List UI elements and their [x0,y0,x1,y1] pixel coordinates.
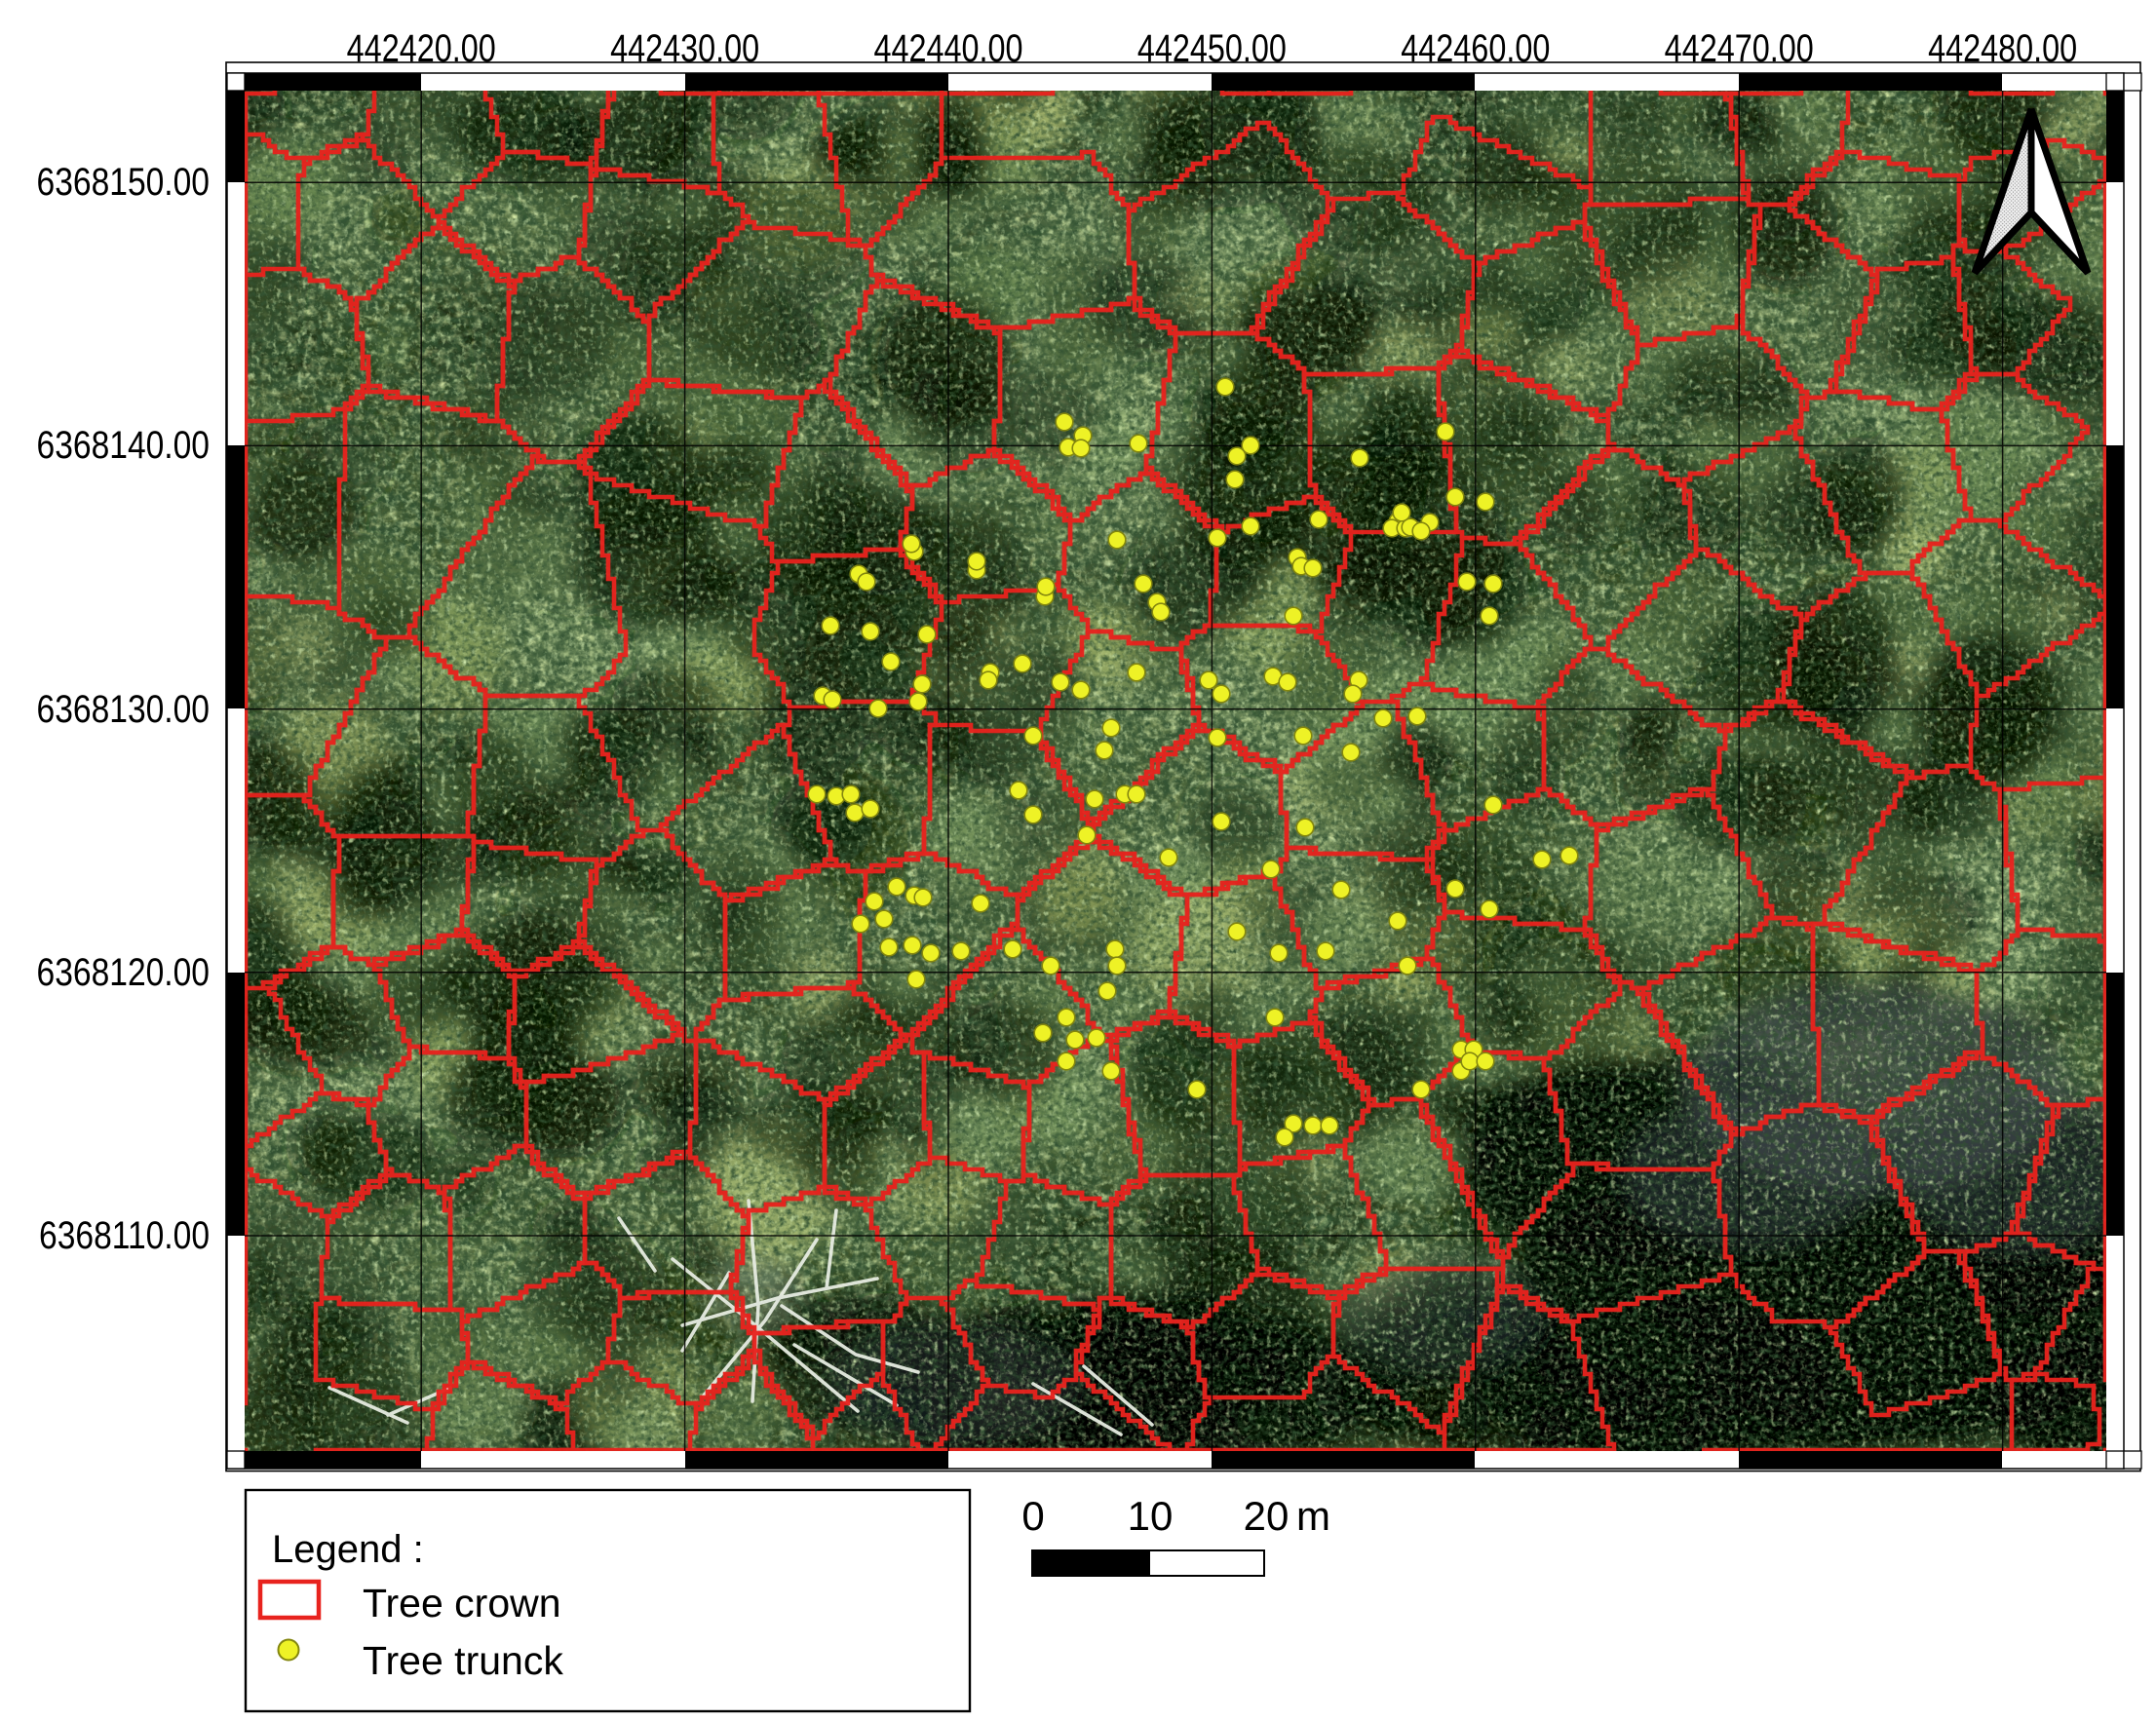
svg-text:20: 20 [1244,1493,1290,1539]
svg-text:442420.00: 442420.00 [347,26,496,70]
svg-text:10: 10 [1128,1493,1174,1539]
svg-text:6368110.00: 6368110.00 [39,1213,210,1256]
svg-text:Tree crown: Tree crown [363,1581,561,1625]
svg-text:6368120.00: 6368120.00 [37,950,210,993]
svg-text:442470.00: 442470.00 [1665,26,1814,70]
svg-text:m: m [1296,1493,1330,1539]
svg-text:0: 0 [1021,1493,1044,1539]
svg-text:442440.00: 442440.00 [873,26,1022,70]
svg-text:6368150.00: 6368150.00 [37,160,210,203]
svg-text:6368130.00: 6368130.00 [37,687,210,730]
svg-text:442480.00: 442480.00 [1928,26,2077,70]
svg-text:Tree trunck: Tree trunck [363,1638,563,1683]
svg-text:6368140.00: 6368140.00 [37,423,210,466]
svg-text:Legend :: Legend : [272,1528,424,1571]
svg-text:442460.00: 442460.00 [1401,26,1550,70]
svg-text:442430.00: 442430.00 [610,26,759,70]
svg-text:442450.00: 442450.00 [1137,26,1287,70]
